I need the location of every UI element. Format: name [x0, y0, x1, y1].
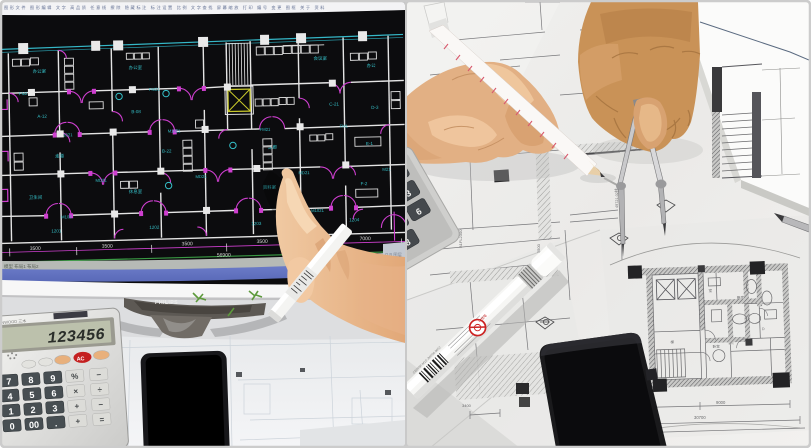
svg-text:模型 布局1 布局2: 模型 布局1 布局2	[4, 263, 39, 270]
svg-text:3500: 3500	[257, 239, 268, 245]
svg-text:%: %	[71, 372, 79, 381]
svg-text:FM21: FM21	[149, 87, 160, 92]
svg-text:M102: M102	[61, 214, 72, 219]
svg-text:FM21: FM21	[260, 127, 271, 132]
svg-text:8: 8	[28, 375, 34, 385]
svg-text:9: 9	[50, 373, 56, 383]
svg-text:1204: 1204	[349, 217, 360, 222]
svg-text:MD21: MD21	[298, 170, 310, 175]
svg-text:卧室: 卧室	[712, 344, 720, 349]
svg-text:MD21: MD21	[195, 174, 207, 179]
svg-text:B-08: B-08	[131, 109, 141, 114]
svg-text:7: 7	[6, 376, 12, 386]
svg-text:AC: AC	[76, 356, 84, 363]
svg-text:E-1: E-1	[366, 141, 374, 146]
svg-text:0: 0	[9, 421, 15, 431]
svg-text:B-22: B-22	[162, 148, 172, 153]
svg-text:C-21: C-21	[329, 102, 339, 107]
svg-text:3500: 3500	[182, 241, 193, 247]
svg-text:4: 4	[7, 391, 13, 401]
svg-text:D-3: D-3	[371, 105, 379, 110]
svg-text:3500: 3500	[30, 246, 41, 252]
svg-text:MD21: MD21	[95, 178, 107, 183]
svg-text:30700: 30700	[694, 415, 706, 420]
svg-text:3: 3	[52, 403, 58, 413]
svg-text:56900: 56900	[217, 252, 231, 258]
svg-text:梯: 梯	[670, 339, 674, 344]
svg-text:PHILIPS: PHILIPS	[155, 300, 178, 306]
svg-text:F-2: F-2	[361, 181, 368, 186]
svg-text:室: 室	[709, 288, 713, 293]
svg-text:1201: 1201	[51, 228, 62, 233]
svg-text:5: 5	[29, 390, 35, 400]
svg-text:A-12: A-12	[37, 114, 47, 119]
svg-text:图形文件 图形编辑 文字 高品质 任意线 擦除: 图形文件 图形编辑 文字 高品质 任意线 擦除 隐藏标注 标注设置 比例 文字查…	[4, 4, 326, 11]
svg-text:M1021: M1021	[168, 128, 182, 133]
svg-text:FM1: FM1	[340, 123, 349, 128]
svg-text:1: 1	[8, 406, 14, 416]
svg-text:厨房: 厨房	[737, 295, 745, 300]
svg-text:3400: 3400	[462, 403, 472, 408]
svg-text:1202: 1202	[149, 225, 160, 230]
svg-text:M21: M21	[382, 167, 391, 172]
svg-text:9000: 9000	[716, 400, 726, 405]
svg-text:7000: 7000	[360, 236, 371, 242]
svg-text:2: 2	[30, 405, 36, 415]
svg-text:1203: 1203	[251, 221, 262, 226]
svg-text:M1021: M1021	[311, 208, 325, 213]
svg-text:3500: 3500	[102, 244, 113, 250]
svg-text:00: 00	[29, 420, 40, 431]
svg-text:6: 6	[51, 388, 57, 398]
